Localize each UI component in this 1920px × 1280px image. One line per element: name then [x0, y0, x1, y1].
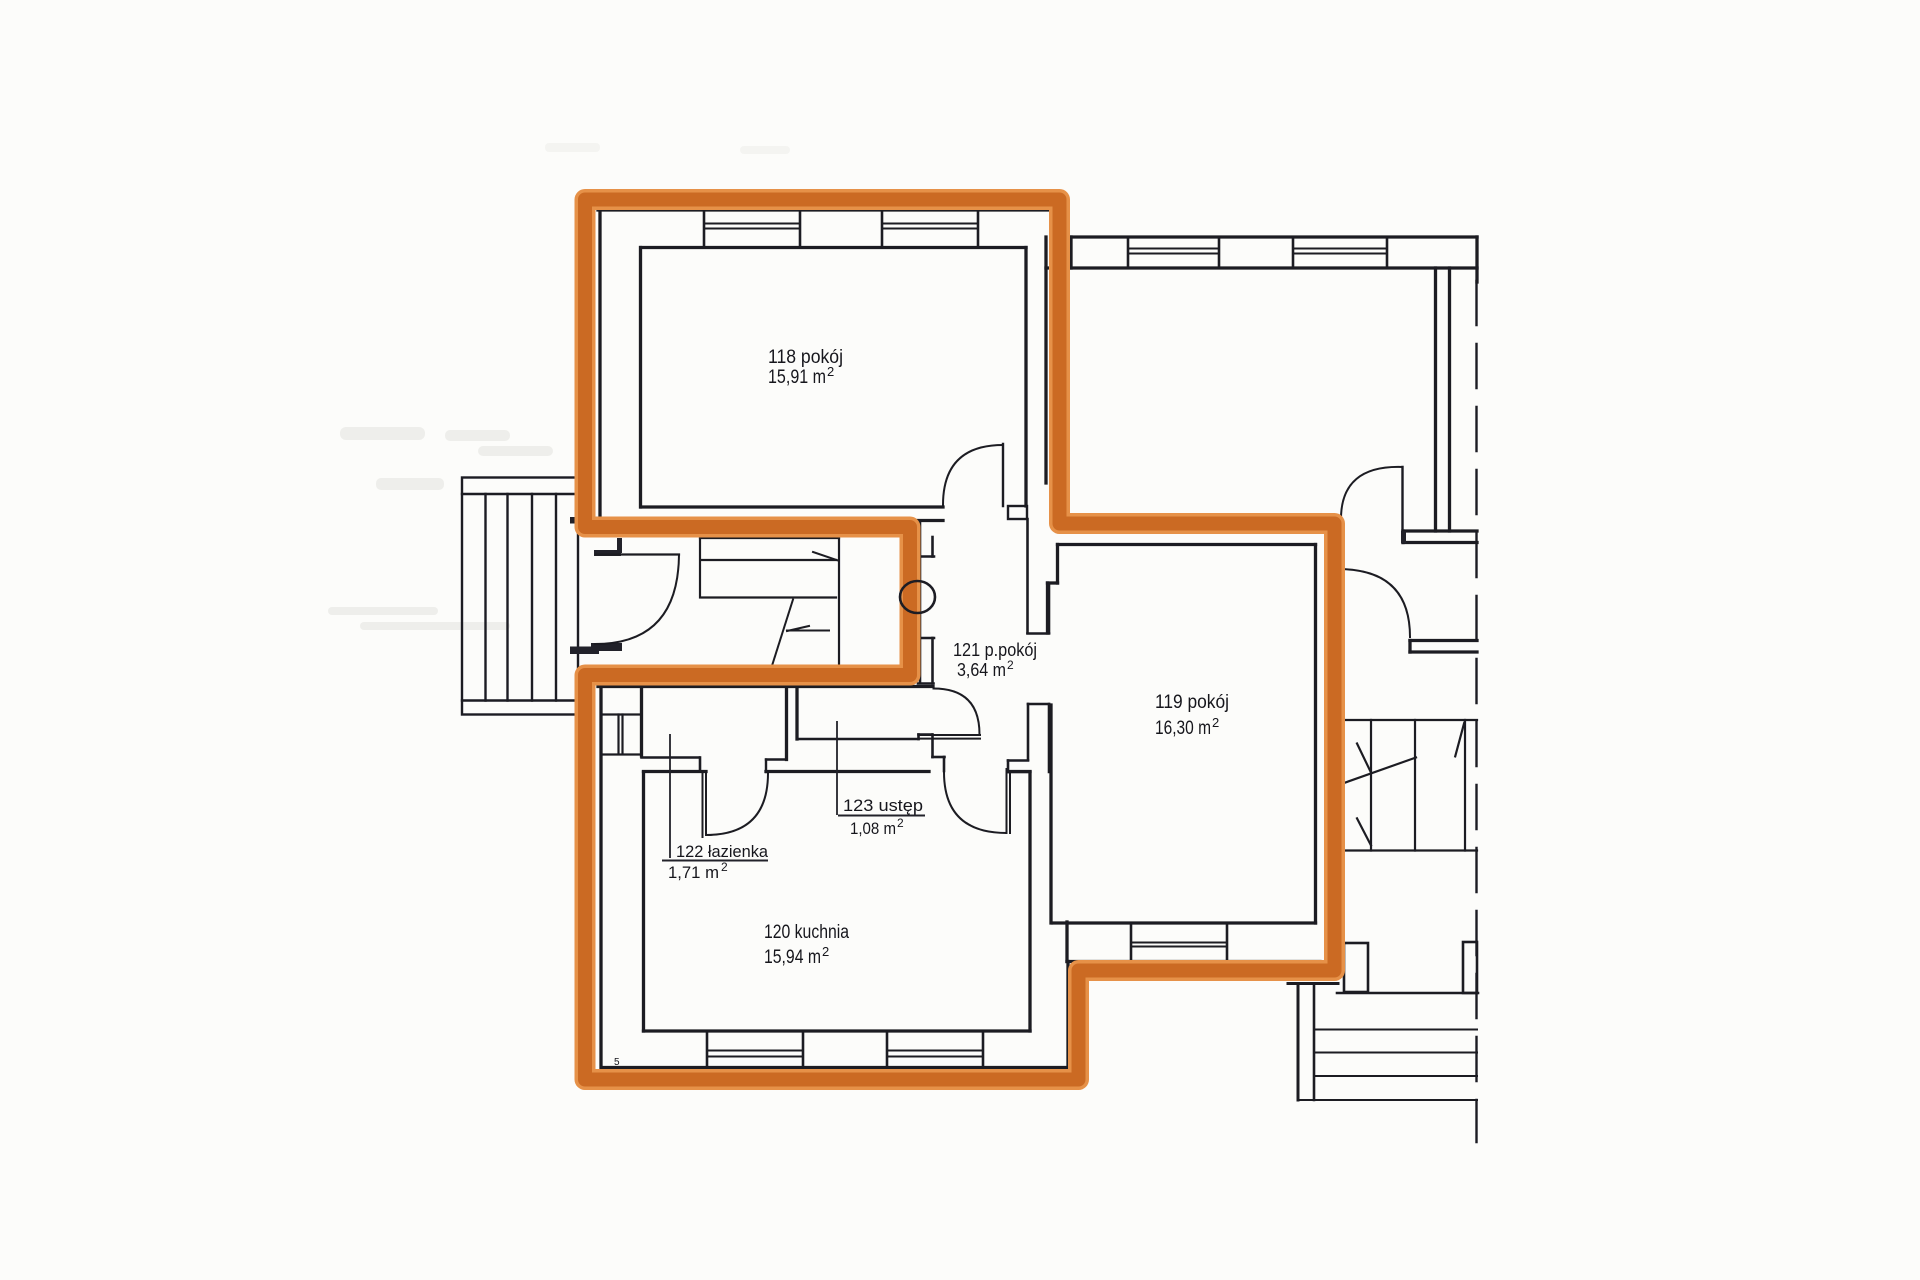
svg-text:2: 2 [897, 816, 904, 830]
svg-text:16,30 m: 16,30 m [1155, 718, 1211, 739]
svg-text:1,08 m: 1,08 m [850, 819, 896, 838]
svg-text:119 pokój: 119 pokój [1155, 692, 1229, 713]
svg-text:15,91 m: 15,91 m [768, 367, 826, 388]
svg-text:120 kuchnia: 120 kuchnia [764, 922, 849, 943]
svg-text:3,64 m: 3,64 m [957, 660, 1006, 680]
svg-text:2: 2 [827, 364, 834, 379]
svg-text:122 łazienka: 122 łazienka [676, 842, 769, 861]
svg-text:123 ustęp: 123 ustęp [843, 796, 923, 815]
svg-text:2: 2 [822, 944, 829, 959]
svg-text:1,71 m: 1,71 m [668, 863, 719, 882]
svg-text:121 p.pokój: 121 p.pokój [953, 640, 1037, 660]
svg-text:2: 2 [1007, 658, 1014, 672]
svg-text:15,94 m: 15,94 m [764, 947, 821, 968]
svg-text:2: 2 [1212, 715, 1219, 730]
svg-text:5: 5 [614, 1057, 620, 1068]
svg-text:2: 2 [721, 860, 728, 874]
